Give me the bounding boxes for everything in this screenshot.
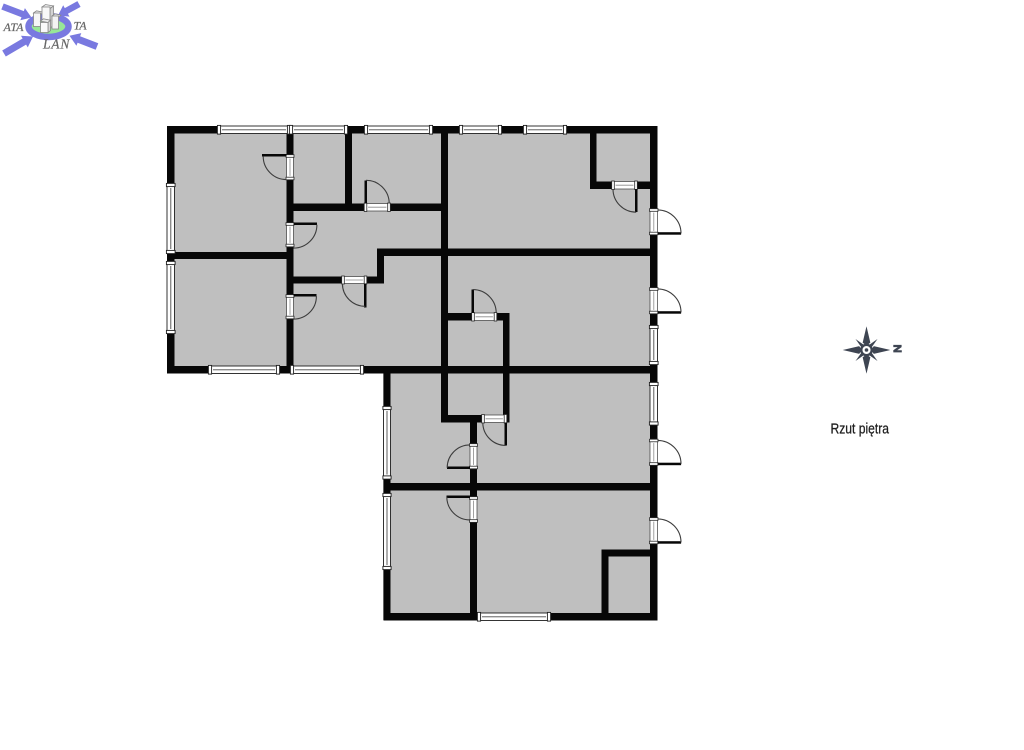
svg-text:Rzut piętra: Rzut piętra (831, 422, 890, 438)
svg-text:LAN: LAN (42, 37, 70, 52)
svg-text:ATA: ATA (3, 20, 25, 34)
svg-text:TA: TA (74, 19, 88, 33)
